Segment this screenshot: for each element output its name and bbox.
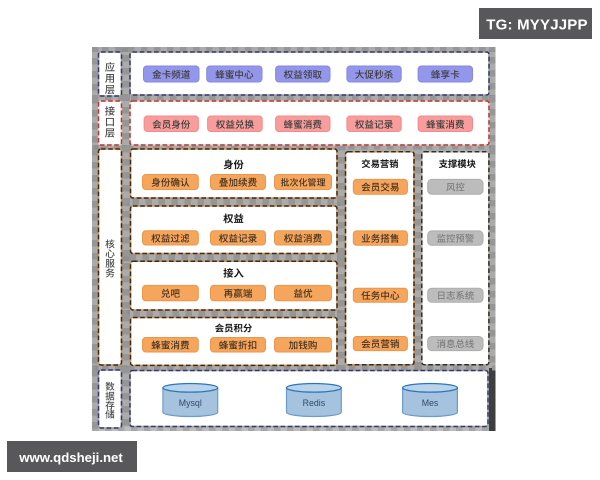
- svg-text:Redis: Redis: [303, 398, 326, 408]
- svg-text:Mysql: Mysql: [179, 398, 202, 408]
- svg-text:www.qdsheji.net: www.qdsheji.net: [18, 450, 123, 465]
- svg-text:Mes: Mes: [422, 398, 439, 408]
- svg-text:TG: MYYJJPP: TG: MYYJJPP: [486, 17, 587, 34]
